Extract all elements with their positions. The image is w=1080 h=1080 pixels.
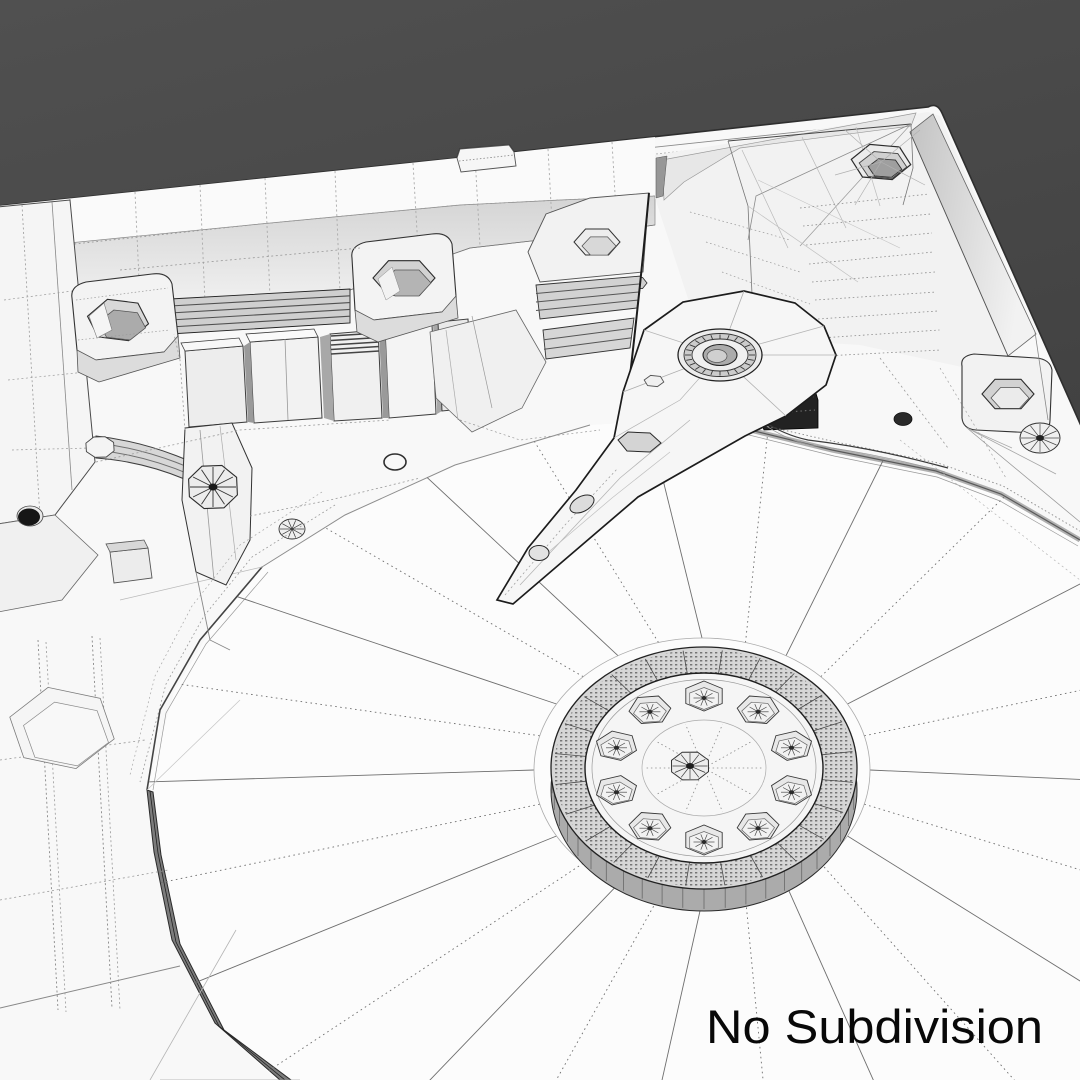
svg-text:No Subdivision: No Subdivision xyxy=(706,1000,1043,1053)
